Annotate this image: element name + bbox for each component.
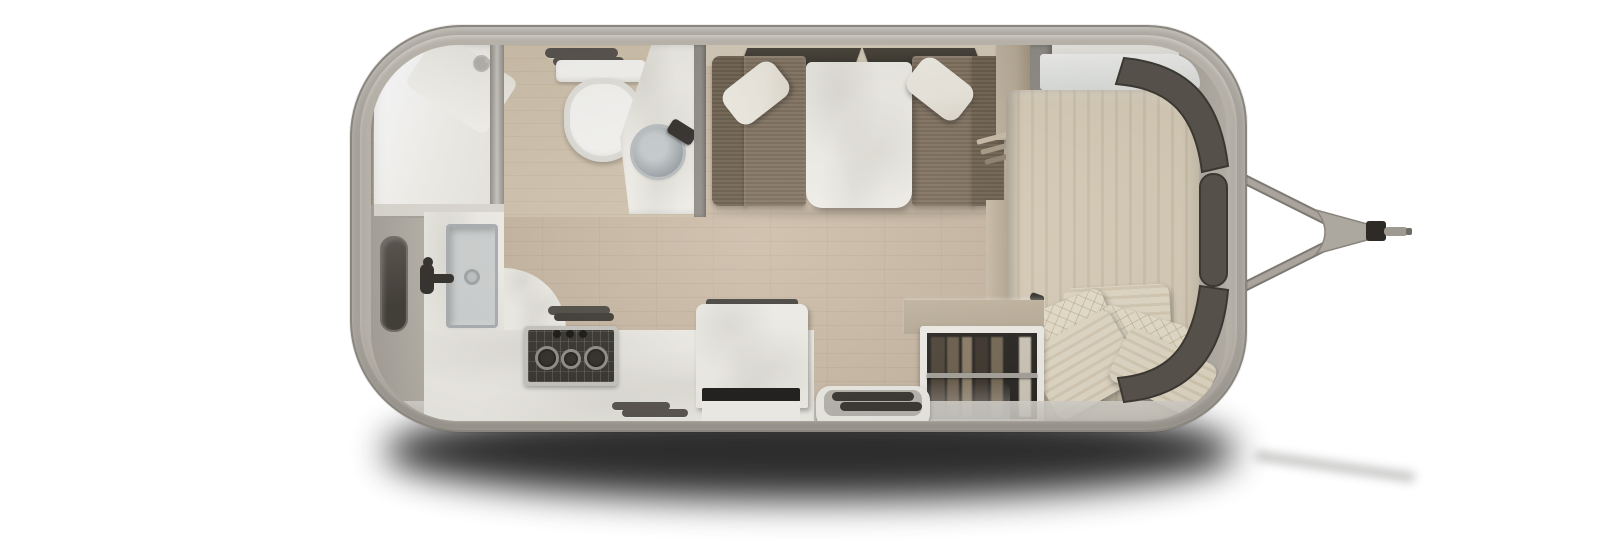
front-windows-svg bbox=[0, 0, 1600, 558]
floorplan-canvas bbox=[0, 0, 1600, 558]
